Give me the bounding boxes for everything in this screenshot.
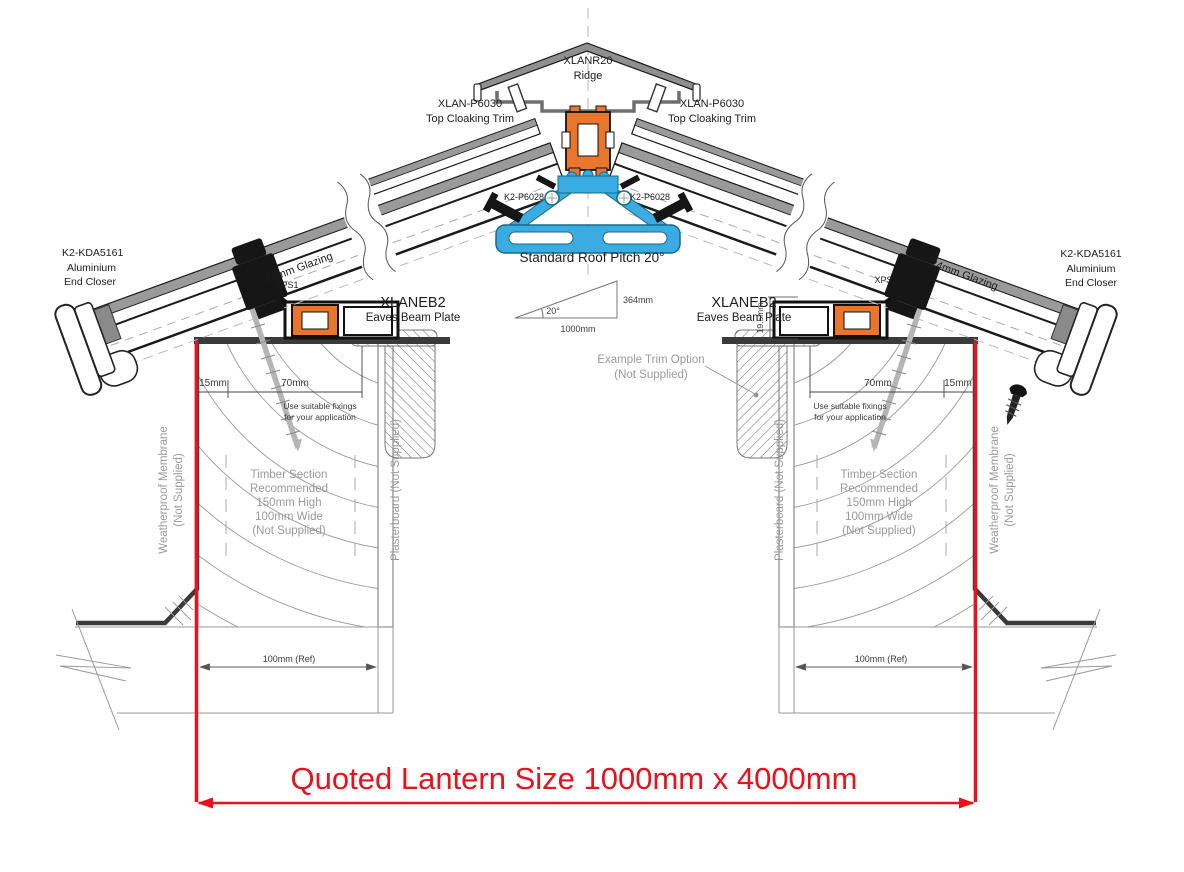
note-membrane-l1-left: Weatherproof Membrane [158, 426, 170, 554]
label-endcloser-part-left: K2-KDA5161 [62, 247, 123, 259]
note-timber-2-right: 150mm High [846, 497, 911, 509]
label-xps-left: XPS1 [275, 280, 298, 290]
note-membrane-l2-right: (Not Supplied) [1004, 453, 1016, 527]
label-ridge-name: Ridge [574, 70, 603, 82]
label-endcloser-part-right: K2-KDA5161 [1060, 248, 1121, 260]
label-eavesbeam-name-right: Eaves Beam Plate [697, 312, 792, 324]
label-trim-name-left: Top Cloaking Trim [426, 113, 514, 125]
label-pitch-angle: 20° [546, 306, 560, 316]
label-gasket-left: K2-P6028 [504, 192, 544, 202]
label-xps-right: XPS1 [874, 275, 897, 285]
note-timber-1-left: Recommended [250, 483, 328, 495]
label-pitch-run: 1000mm [560, 324, 595, 334]
label-roof-pitch: Standard Roof Pitch 20° [520, 250, 665, 265]
label-endcloser-l3-right: End Closer [1065, 277, 1117, 289]
label-eavesbeam-part-left: XLANEB2 [380, 295, 445, 311]
pitch-triangle [515, 281, 617, 318]
label-quoted-size: Quoted Lantern Size 1000mm x 4000mm [291, 761, 858, 796]
drawing-sheet: XLANR20 Ridge XLAN-P6030 Top Cloaking Tr… [0, 0, 1184, 872]
label-eavesbeam-name-left: Eaves Beam Plate [366, 312, 461, 324]
label-endcloser-l3-left: End Closer [64, 276, 116, 288]
note-timber-0-right: Timber Section [841, 469, 918, 481]
label-endcloser-l2-left: Aluminium [67, 262, 116, 274]
note-trim-option-l1: Example Trim Option [597, 354, 704, 366]
label-dim-70-right: 70mm [864, 378, 892, 389]
ridge-cap [478, 43, 696, 91]
note-plasterboard-right: Plasterboard (Not Supplied) [774, 419, 786, 561]
label-pitch-rise: 364mm [623, 295, 653, 305]
note-timber-4-right: (Not Supplied) [842, 525, 916, 537]
note-membrane-l2-left: (Not Supplied) [173, 453, 185, 527]
note-timber-1-right: Recommended [840, 483, 918, 495]
note-timber-3-right: 100mm Wide [845, 511, 913, 523]
label-dim-15-left: 15mm [199, 378, 227, 389]
label-dim-100ref-right: 100mm (Ref) [855, 654, 908, 664]
note-timber-2-left: 150mm High [256, 497, 321, 509]
ridge-thermal-break-profile [562, 106, 614, 177]
note-timber-3-left: 100mm Wide [255, 511, 323, 523]
label-ridge-part: XLANR20 [564, 55, 613, 67]
note-fixings-l1-right: Use suitable fixings [813, 401, 886, 411]
note-plasterboard-left: Plasterboard (Not Supplied) [390, 419, 402, 561]
note-fixings-l1-left: Use suitable fixings [283, 401, 356, 411]
note-timber-0-left: Timber Section [251, 469, 328, 481]
label-gasket-right: K2-P6028 [630, 192, 670, 202]
label-trim-name-right: Top Cloaking Trim [668, 113, 756, 125]
label-dim-19-5: 19.5mm [755, 303, 765, 334]
note-timber-4-left: (Not Supplied) [252, 525, 326, 537]
label-trim-part-right: XLAN-P6030 [680, 98, 744, 110]
note-fixings-l2-left: for your application [284, 412, 356, 422]
label-eavesbeam-part-right: XLANEB2 [711, 295, 776, 311]
note-fixings-l2-right: for your application [814, 412, 886, 422]
label-endcloser-l2-right: Aluminium [1066, 263, 1115, 275]
note-trim-option-l2: (Not Supplied) [614, 369, 688, 381]
label-dim-15-right: 15mm [944, 378, 972, 389]
quoted-size-dimension [197, 798, 975, 809]
screw-icon [999, 382, 1029, 428]
lantern-section-drawing: XLANR20 Ridge XLAN-P6030 Top Cloaking Tr… [0, 0, 1184, 872]
note-membrane-l1-right: Weatherproof Membrane [989, 426, 1001, 554]
label-dim-100ref-left: 100mm (Ref) [263, 654, 316, 664]
label-trim-part-left: XLAN-P6030 [438, 98, 502, 110]
label-dim-70-left: 70mm [281, 378, 309, 389]
